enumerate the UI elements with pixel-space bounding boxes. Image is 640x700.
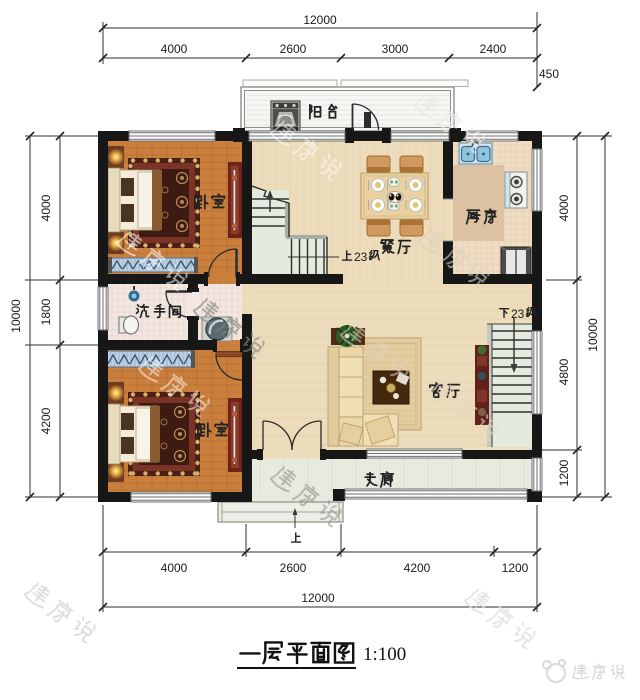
svg-text:12000: 12000 [303, 13, 337, 27]
svg-text:10000: 10000 [9, 299, 23, 333]
svg-text:4000: 4000 [161, 42, 188, 56]
svg-text:4200: 4200 [404, 561, 431, 575]
svg-text:3000: 3000 [382, 42, 409, 56]
svg-text:2600: 2600 [280, 561, 307, 575]
svg-text:4000: 4000 [557, 194, 571, 221]
svg-text:1:100: 1:100 [363, 644, 406, 665]
svg-text:23: 23 [511, 307, 525, 321]
svg-text:4200: 4200 [39, 407, 53, 434]
svg-text:4800: 4800 [557, 358, 571, 385]
svg-text:10000: 10000 [586, 318, 600, 352]
svg-text:450: 450 [539, 67, 559, 81]
svg-text:2600: 2600 [280, 42, 307, 56]
svg-text:23: 23 [354, 250, 368, 264]
svg-text:4000: 4000 [39, 194, 53, 221]
svg-text:4000: 4000 [161, 561, 188, 575]
svg-text:1800: 1800 [39, 298, 53, 325]
svg-text:1200: 1200 [502, 561, 529, 575]
svg-text:1200: 1200 [557, 459, 571, 486]
svg-text:12000: 12000 [301, 591, 335, 605]
svg-text:2400: 2400 [480, 42, 507, 56]
